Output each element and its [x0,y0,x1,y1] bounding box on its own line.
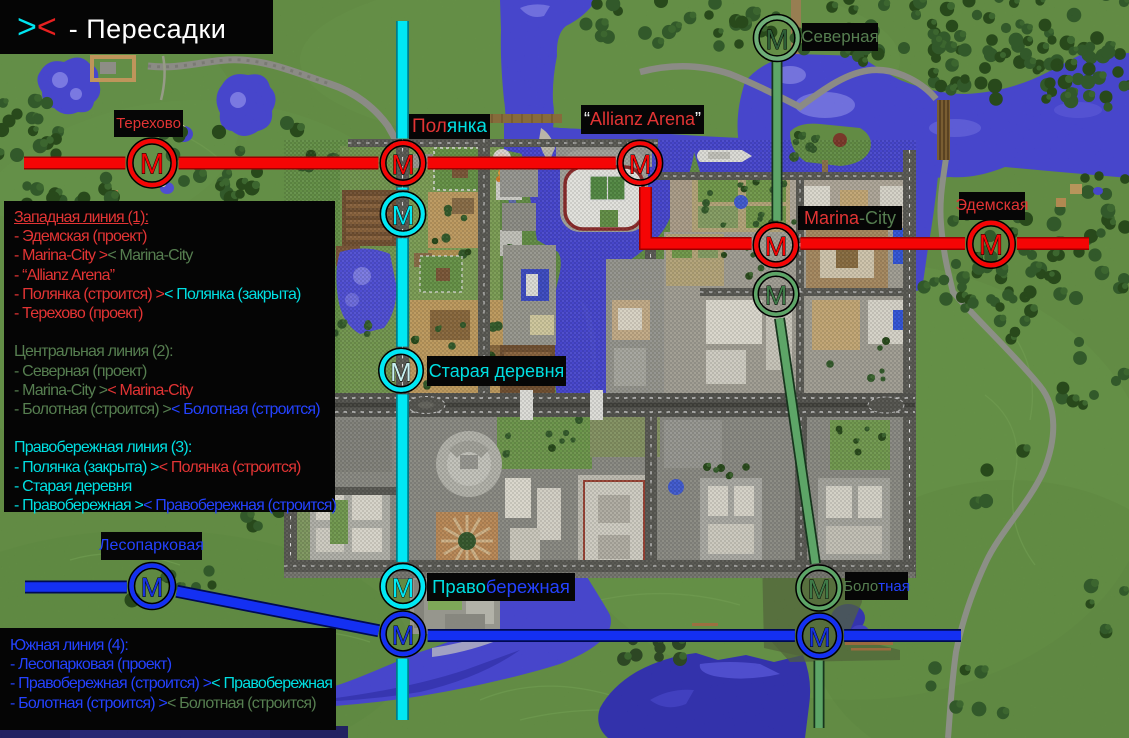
svg-text:M: M [390,357,412,387]
svg-text:M: M [391,149,414,180]
svg-text:M: M [808,575,831,605]
svg-text:M: M [808,623,831,653]
svg-text:M: M [141,573,164,603]
svg-text:M: M [392,573,415,603]
svg-text:M: M [392,621,415,651]
svg-text:M: M [629,150,652,180]
svg-text:M: M [765,232,788,262]
svg-text:M: M [765,281,788,311]
svg-text:M: M [979,230,1003,262]
svg-text:M: M [140,149,164,181]
svg-text:M: M [765,24,788,55]
svg-text:M: M [392,201,415,231]
